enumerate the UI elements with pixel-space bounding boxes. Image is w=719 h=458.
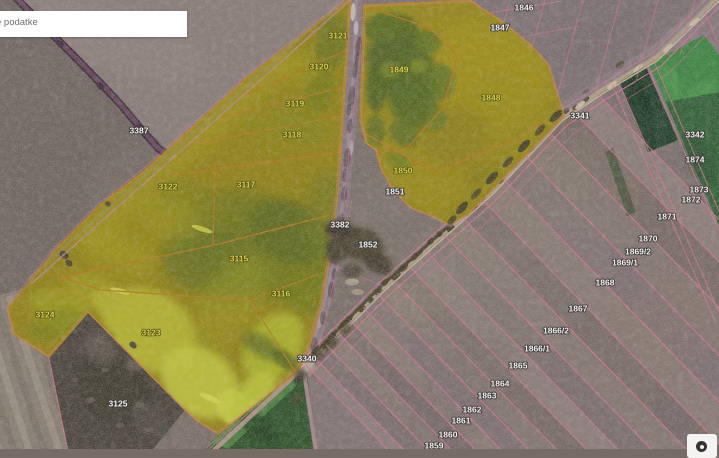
svg-text:1849: 1849: [390, 65, 409, 75]
svg-text:1871: 1871: [658, 212, 677, 222]
svg-text:1868: 1868: [596, 278, 615, 288]
svg-text:3116: 3116: [272, 289, 291, 299]
svg-text:1848: 1848: [482, 93, 501, 103]
svg-text:1874: 1874: [686, 155, 705, 165]
svg-text:1862: 1862: [463, 405, 482, 415]
svg-text:3124: 3124: [36, 310, 55, 320]
svg-text:3122: 3122: [159, 182, 178, 192]
svg-text:1872: 1872: [682, 195, 701, 205]
svg-text:1864: 1864: [491, 379, 510, 389]
svg-text:3340: 3340: [298, 354, 317, 364]
svg-text:1867: 1867: [569, 304, 588, 314]
svg-text:1873: 1873: [690, 185, 709, 195]
svg-text:1847: 1847: [491, 23, 510, 33]
svg-text:3341: 3341: [571, 111, 590, 121]
svg-text:3387: 3387: [130, 126, 149, 136]
svg-text:1863: 1863: [478, 391, 497, 401]
svg-text:3117: 3117: [237, 180, 256, 190]
svg-text:3120: 3120: [310, 62, 329, 72]
svg-text:1859: 1859: [425, 441, 444, 450]
svg-text:1860: 1860: [439, 430, 458, 440]
svg-text:3115: 3115: [230, 254, 249, 264]
svg-text:1846: 1846: [515, 3, 534, 13]
svg-text:1866/1: 1866/1: [524, 344, 550, 354]
svg-text:3125: 3125: [109, 399, 128, 409]
svg-text:3342: 3342: [686, 130, 705, 140]
svg-text:1861: 1861: [452, 416, 471, 426]
svg-text:3123: 3123: [142, 328, 161, 338]
svg-text:1870: 1870: [639, 234, 658, 244]
svg-text:1866/2: 1866/2: [543, 326, 569, 336]
svg-text:3121: 3121: [329, 31, 348, 41]
svg-text:3118: 3118: [283, 130, 302, 140]
svg-text:3382: 3382: [331, 220, 350, 230]
svg-text:1850: 1850: [394, 166, 413, 176]
svg-text:1865: 1865: [509, 361, 528, 371]
svg-text:1851: 1851: [386, 187, 405, 197]
svg-text:3119: 3119: [286, 99, 305, 109]
svg-text:1869/1: 1869/1: [612, 258, 638, 268]
svg-text:1869/2: 1869/2: [625, 247, 651, 257]
svg-text:1852: 1852: [359, 240, 378, 250]
